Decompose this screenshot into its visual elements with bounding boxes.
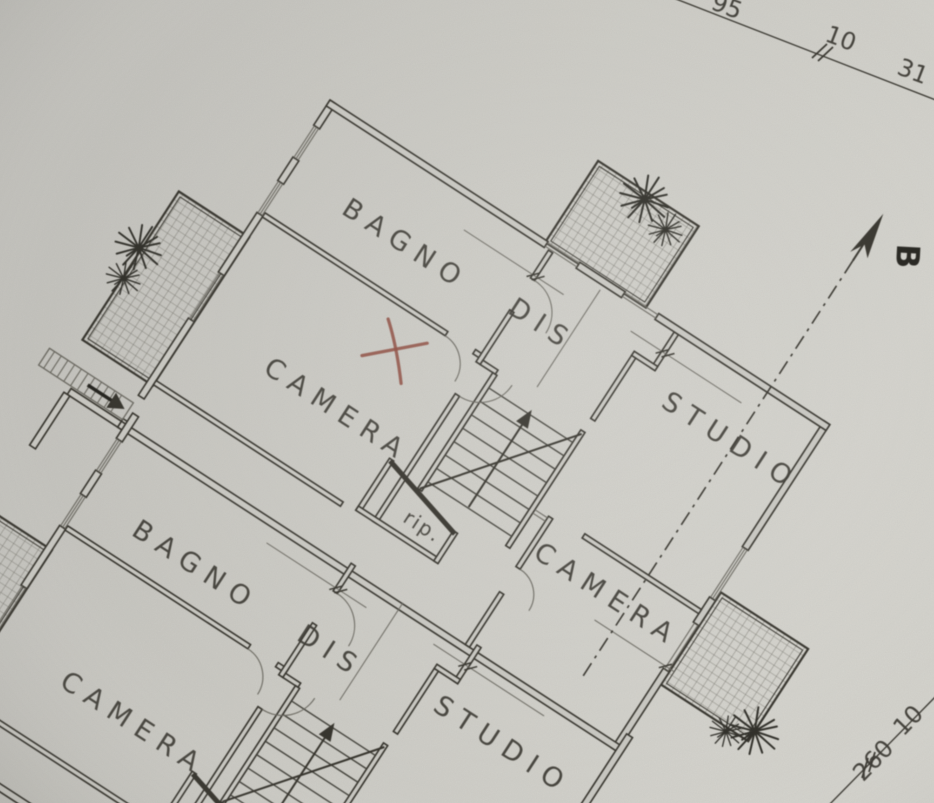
- scan-noise: [0, 0, 934, 803]
- floor-plan-scan: B BAGNO DIS STUDIO CAMERA rip. CAMERA BA…: [0, 0, 934, 803]
